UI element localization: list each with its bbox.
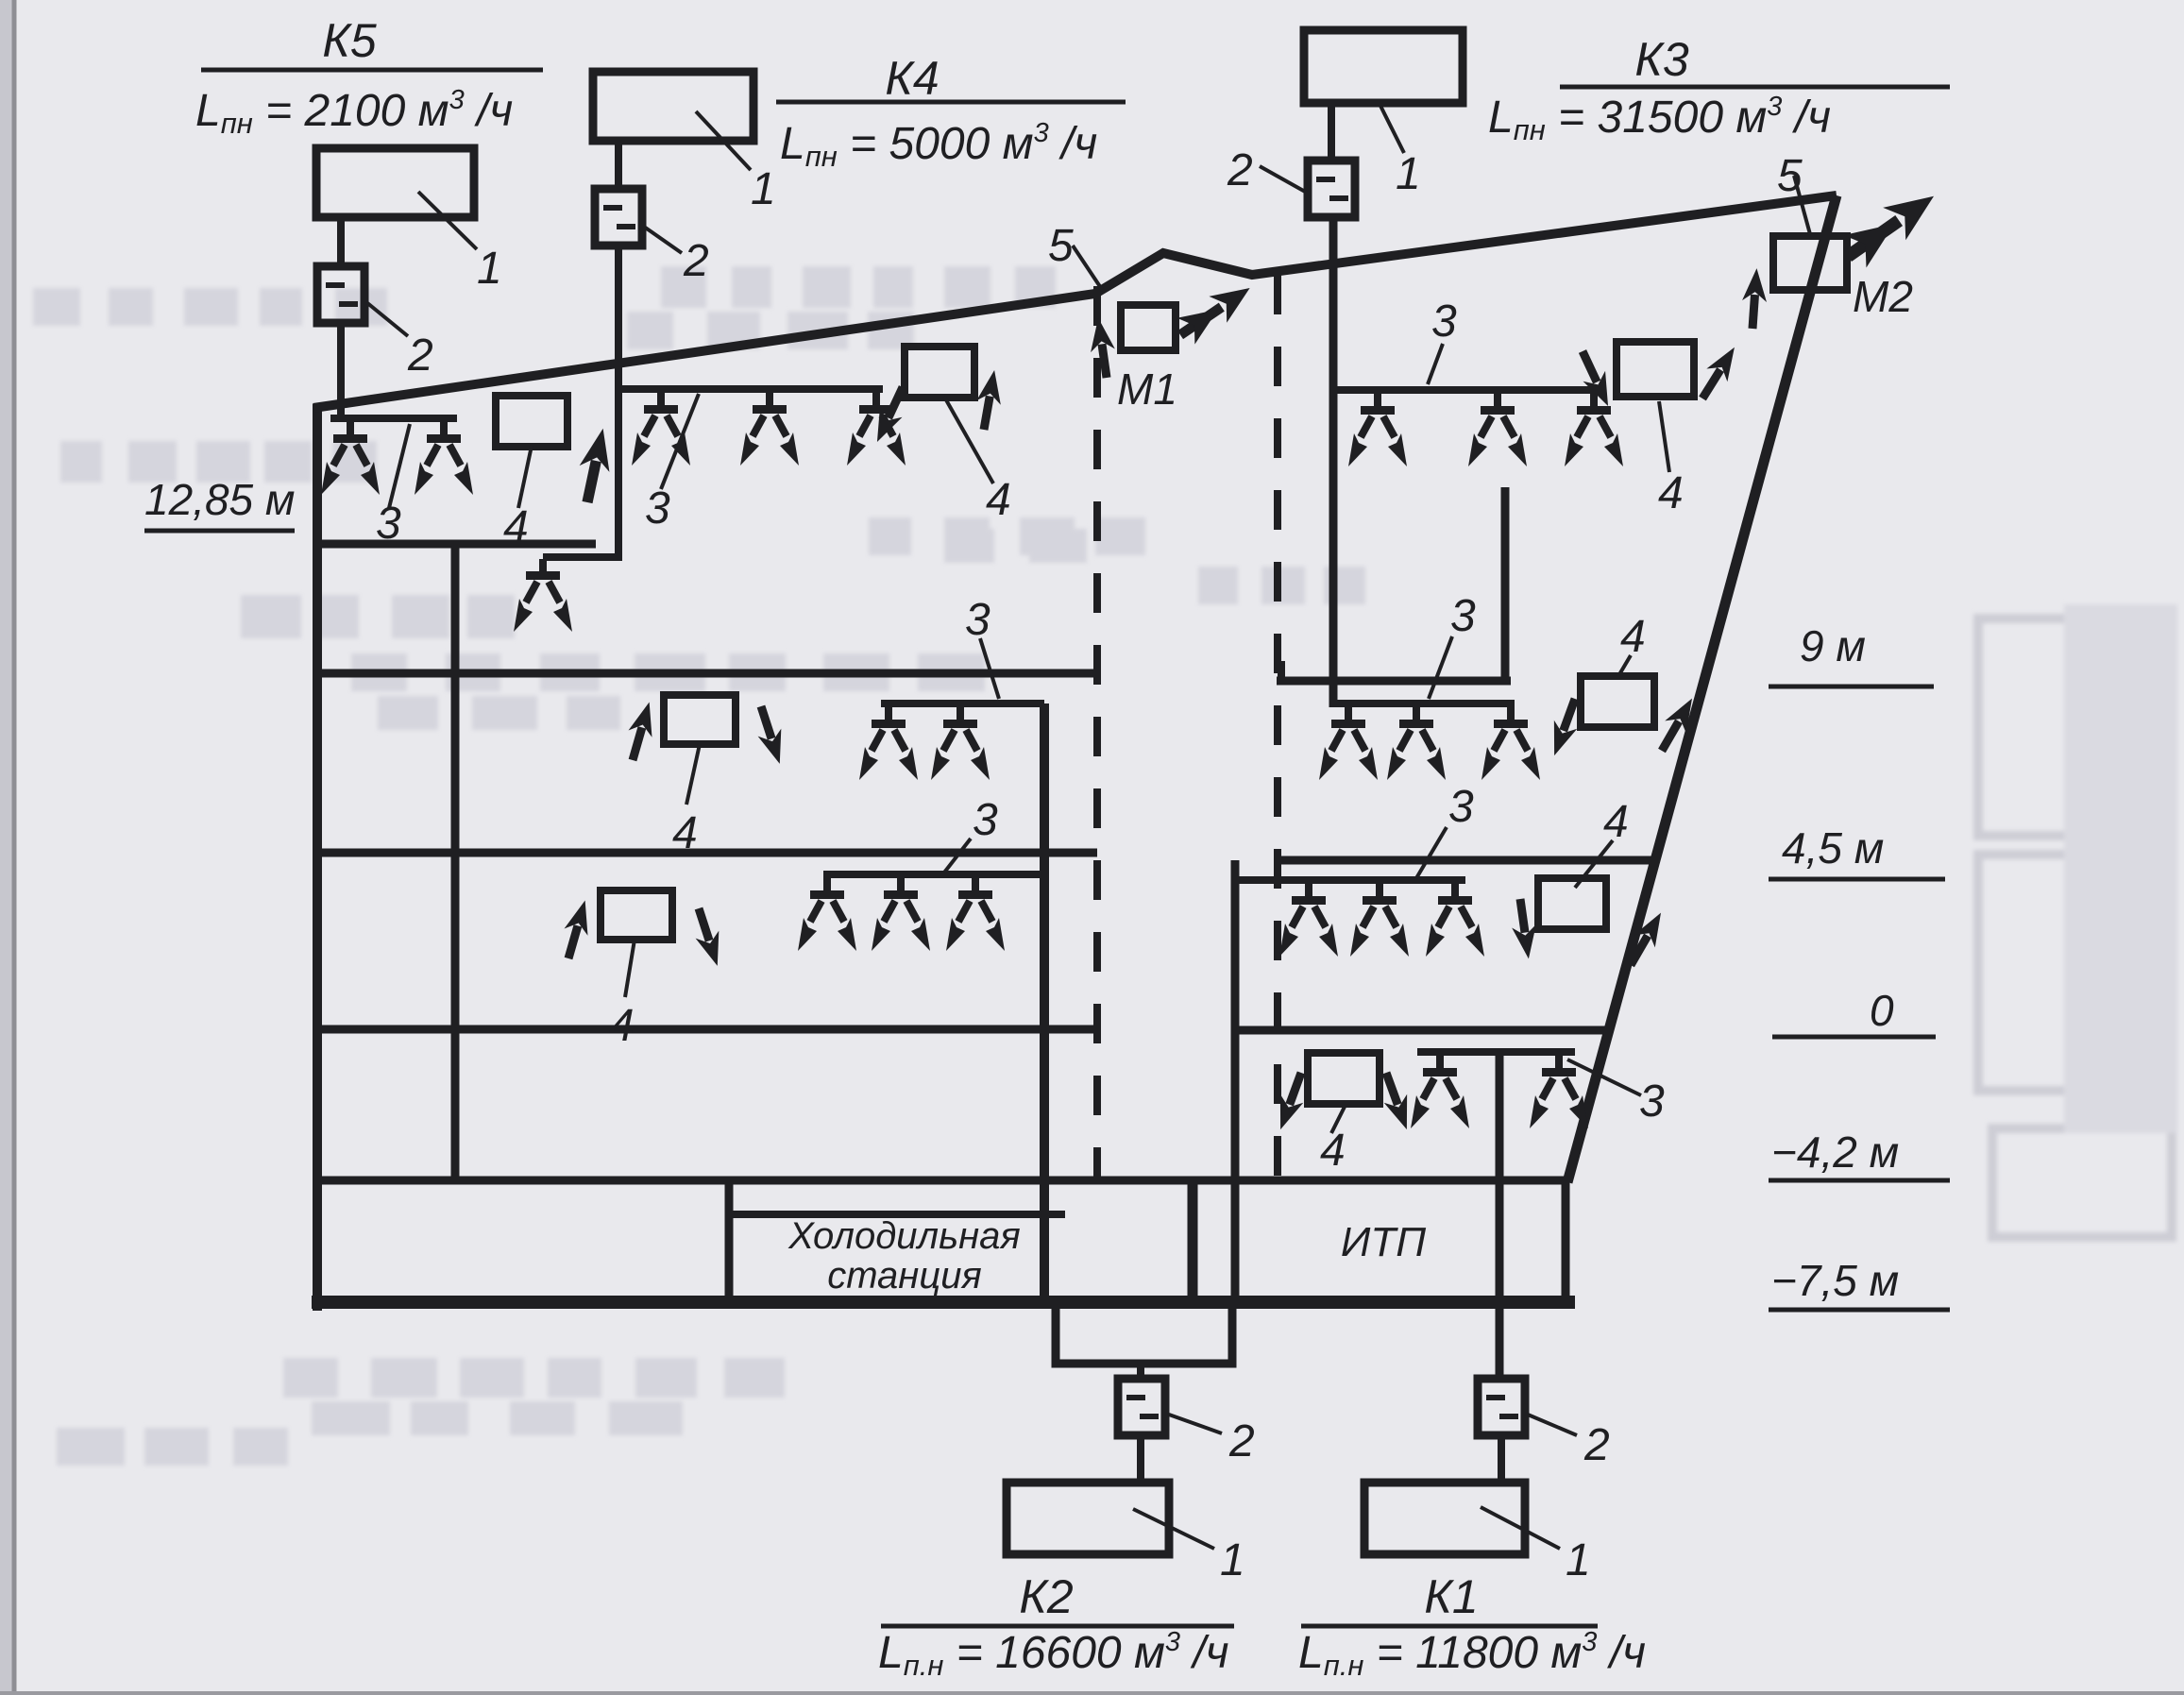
svg-text:3: 3 bbox=[1448, 782, 1474, 832]
svg-text:3: 3 bbox=[965, 595, 990, 645]
svg-text:4: 4 bbox=[1603, 797, 1629, 847]
svg-text:М1: М1 bbox=[1117, 364, 1177, 414]
svg-text:3: 3 bbox=[376, 499, 401, 549]
svg-text:3: 3 bbox=[645, 483, 670, 534]
svg-text:12,85 м: 12,85 м bbox=[144, 475, 295, 524]
svg-text:1: 1 bbox=[1566, 1535, 1591, 1585]
svg-text:4: 4 bbox=[609, 1001, 635, 1051]
svg-text:4: 4 bbox=[986, 475, 1011, 525]
svg-text:1: 1 bbox=[477, 244, 502, 294]
svg-text:2: 2 bbox=[407, 331, 433, 381]
svg-text:4: 4 bbox=[503, 502, 529, 552]
svg-text:К5: К5 bbox=[322, 14, 376, 67]
svg-text:−7,5 м: −7,5 м bbox=[1771, 1256, 1899, 1305]
svg-text:К4: К4 bbox=[885, 52, 939, 105]
svg-text:4: 4 bbox=[1320, 1126, 1346, 1176]
svg-text:2: 2 bbox=[1583, 1420, 1610, 1470]
svg-text:ИТП: ИТП bbox=[1341, 1219, 1426, 1265]
svg-text:9 м: 9 м bbox=[1800, 621, 1866, 670]
svg-text:1: 1 bbox=[751, 164, 776, 214]
svg-text:2: 2 bbox=[1227, 145, 1253, 195]
svg-text:1: 1 bbox=[1396, 149, 1421, 199]
svg-text:К2: К2 bbox=[1019, 1570, 1073, 1623]
svg-text:5: 5 bbox=[1777, 151, 1803, 201]
svg-text:3: 3 bbox=[973, 795, 998, 845]
svg-text:3: 3 bbox=[1431, 297, 1457, 347]
svg-text:3: 3 bbox=[1450, 591, 1476, 641]
svg-text:станция: станция bbox=[827, 1255, 982, 1297]
svg-text:4: 4 bbox=[1620, 612, 1646, 662]
svg-text:3: 3 bbox=[1639, 1076, 1665, 1127]
svg-text:0: 0 bbox=[1870, 986, 1894, 1035]
svg-text:2: 2 bbox=[1228, 1416, 1255, 1466]
svg-text:4: 4 bbox=[672, 808, 698, 858]
svg-text:Холодильная: Холодильная bbox=[787, 1215, 1021, 1257]
svg-text:−4,2 м: −4,2 м bbox=[1771, 1127, 1899, 1177]
svg-text:4,5 м: 4,5 м bbox=[1782, 823, 1884, 873]
svg-text:К1: К1 bbox=[1424, 1570, 1478, 1623]
svg-text:К3: К3 bbox=[1634, 33, 1688, 86]
svg-text:1: 1 bbox=[1220, 1535, 1245, 1585]
svg-text:5: 5 bbox=[1048, 221, 1074, 271]
svg-text:2: 2 bbox=[683, 236, 709, 286]
svg-text:М2: М2 bbox=[1853, 272, 1913, 321]
svg-text:4: 4 bbox=[1658, 468, 1684, 518]
